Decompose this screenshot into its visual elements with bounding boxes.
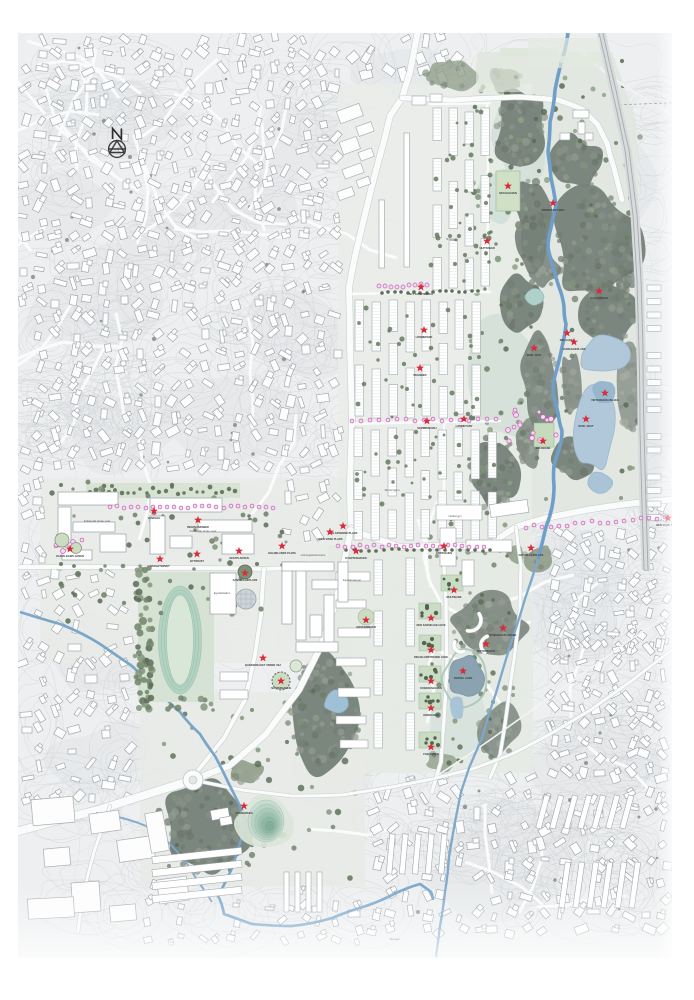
svg-text:SKOLETORVET: SKOLETORVET — [150, 564, 170, 568]
svg-text:BOLDBANE: BOLDBANE — [536, 446, 551, 450]
svg-text:Skovengen: Skovengen — [384, 488, 399, 492]
svg-text:VANDLEGEPLADSEN: VANDLEGEPLADSEN — [490, 633, 517, 637]
svg-text:RUNL VEST: RUNL VEST — [527, 353, 542, 357]
svg-text:OEEN VISSE PLADS: OEEN VISSE PLADS — [317, 537, 342, 541]
svg-text:VEJTRAEER: VEJTRAEER — [479, 246, 495, 250]
svg-text:Kokkedal skole vest: Kokkedal skole vest — [84, 519, 111, 523]
svg-text:VANDHAVEN: VANDHAVEN — [423, 713, 439, 717]
svg-text:Nordengen: Nordengen — [449, 514, 462, 518]
svg-text:VEDDEL AAEN: VEDDEL AAEN — [454, 676, 473, 680]
svg-text:MENNESKET BRO: MENNESKET BRO — [542, 208, 565, 212]
svg-text:Egedalsvaenge: Egedalsvaenge — [343, 578, 361, 582]
svg-text:NATTERGALEN: NATTERGALEN — [271, 686, 291, 690]
svg-text:BYTORVET: BYTORVET — [190, 559, 204, 563]
svg-text:KORSVEJEN: KORSVEJEN — [436, 551, 452, 555]
svg-text:REGNBED: REGNBED — [414, 373, 427, 377]
svg-text:KVARTERHAVEN: KVARTERHAVEN — [345, 556, 366, 560]
svg-text:MULTIBANE: MULTIBANE — [446, 595, 461, 599]
svg-text:VANDLEG: VANDLEG — [148, 516, 161, 520]
svg-text:OESTPLADSEN: OESTPLADSEN — [229, 556, 249, 560]
svg-text:FAELLEDEN: FAELLEDEN — [423, 752, 439, 756]
svg-text:LOMMEPARK: LOMMEPARK — [416, 335, 433, 339]
svg-text:VINTERBADEANLAEG: VINTERBADEANLAEG — [591, 398, 619, 402]
svg-text:NATURLEGEPLADS: NATURLEGEPLADS — [519, 553, 544, 557]
svg-text:KALVEHAVEN: KALVEHAVEN — [590, 296, 608, 300]
svg-text:RUNL OEST: RUNL OEST — [579, 424, 594, 428]
svg-text:Kokkedal skole oest: Kokkedal skole oest — [190, 529, 217, 533]
svg-text:MOTORIKKEN: MOTORIKKEN — [477, 649, 495, 653]
svg-text:GROENNINGEN: GROENNINGEN — [356, 625, 376, 629]
svg-text:VANDLEGEPLADS: VANDLEGEPLADS — [562, 347, 585, 351]
svg-text:SKOLEHAVEN: SKOLEHAVEN — [499, 191, 517, 195]
svg-text:SKYBRUDSVEJ: SKYBRUDSVEJ — [417, 426, 437, 430]
svg-text:BAKKEDRAGET UNDER VEJ: BAKKEDRAGET UNDER VEJ — [245, 663, 281, 667]
svg-text:HOLMELUNDS PLADS: HOLMELUNDS PLADS — [268, 551, 296, 555]
svg-text:KLIMALEGEPLADSEN: KLIMALEGEPLADSEN — [56, 554, 84, 558]
svg-text:NYT KVARTERHUS: NYT KVARTERHUS — [409, 292, 433, 296]
svg-text:Broengen: Broengen — [446, 237, 458, 241]
svg-text:SANSELEGEPLADS: SANSELEGEPLADS — [233, 578, 258, 582]
svg-text:DEN GROENNE PLADS: DEN GROENNE PLADS — [329, 531, 358, 535]
svg-text:KOEKKENHAVEN: KOEKKENHAVEN — [420, 686, 442, 690]
svg-text:Holmegaardscenteret: Holmegaardscenteret — [301, 553, 326, 557]
svg-text:LOMMETORV: LOMMETORV — [456, 424, 473, 428]
svg-text:BYGMARKEN: BYGMARKEN — [235, 811, 252, 815]
svg-text:DEN BLOMSTRENDE HAVE: DEN BLOMSTRENDE HAVE — [414, 655, 448, 659]
svg-text:Egedalshallen: Egedalshallen — [214, 591, 231, 595]
svg-text:DEN SANSELIGE HAVE: DEN SANSELIGE HAVE — [417, 623, 446, 627]
